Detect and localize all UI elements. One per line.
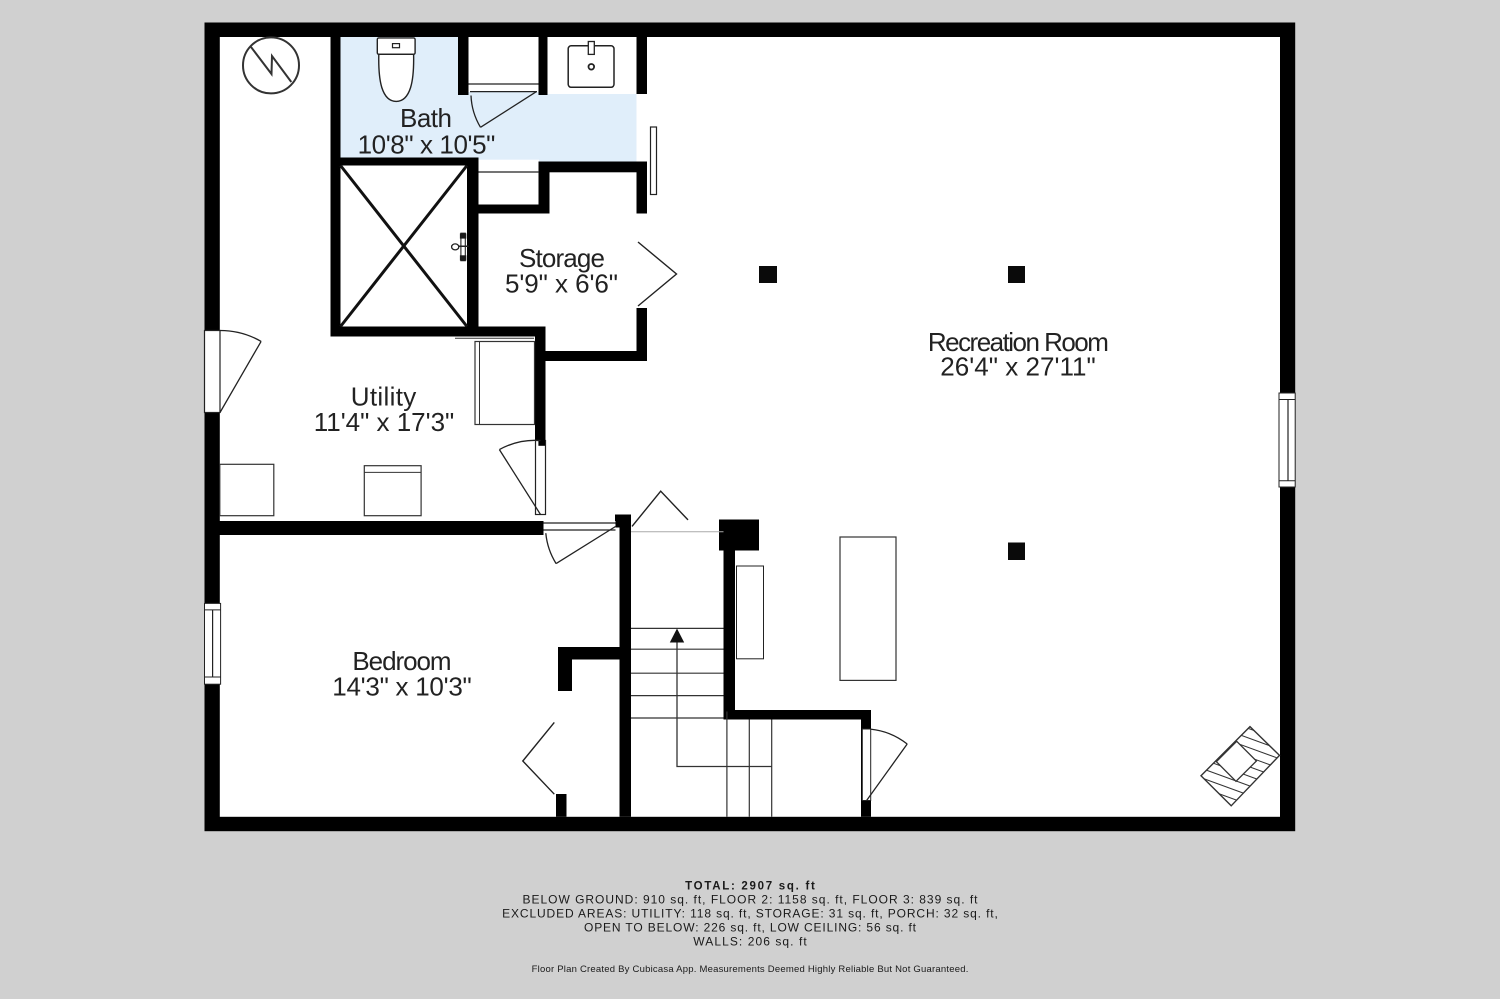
svg-text:26'4" x 27'11": 26'4" x 27'11" [940,351,1096,381]
svg-text:OPEN TO BELOW: 226 sq. ft, LOW: OPEN TO BELOW: 226 sq. ft, LOW CEILING: … [584,920,917,934]
svg-text:WALLS: 206 sq. ft: WALLS: 206 sq. ft [693,934,807,948]
svg-text:5'9" x 6'6": 5'9" x 6'6" [505,268,618,298]
svg-text:TOTAL: 2907 sq. ft: TOTAL: 2907 sq. ft [685,880,815,892]
svg-text:BELOW GROUND: 910 sq. ft, FLOO: BELOW GROUND: 910 sq. ft, FLOOR 2: 1158 … [523,892,979,906]
svg-text:11'4" x 17'3": 11'4" x 17'3" [314,407,455,437]
svg-text:10'8" x 10'5": 10'8" x 10'5" [358,129,496,159]
svg-text:EXCLUDED AREAS: UTILITY: 118 s: EXCLUDED AREAS: UTILITY: 118 sq. ft, STO… [502,906,998,920]
svg-text:Floor Plan Created By Cubicasa: Floor Plan Created By Cubicasa App. Meas… [532,964,969,975]
svg-text:14'3" x 10'3": 14'3" x 10'3" [332,672,472,702]
